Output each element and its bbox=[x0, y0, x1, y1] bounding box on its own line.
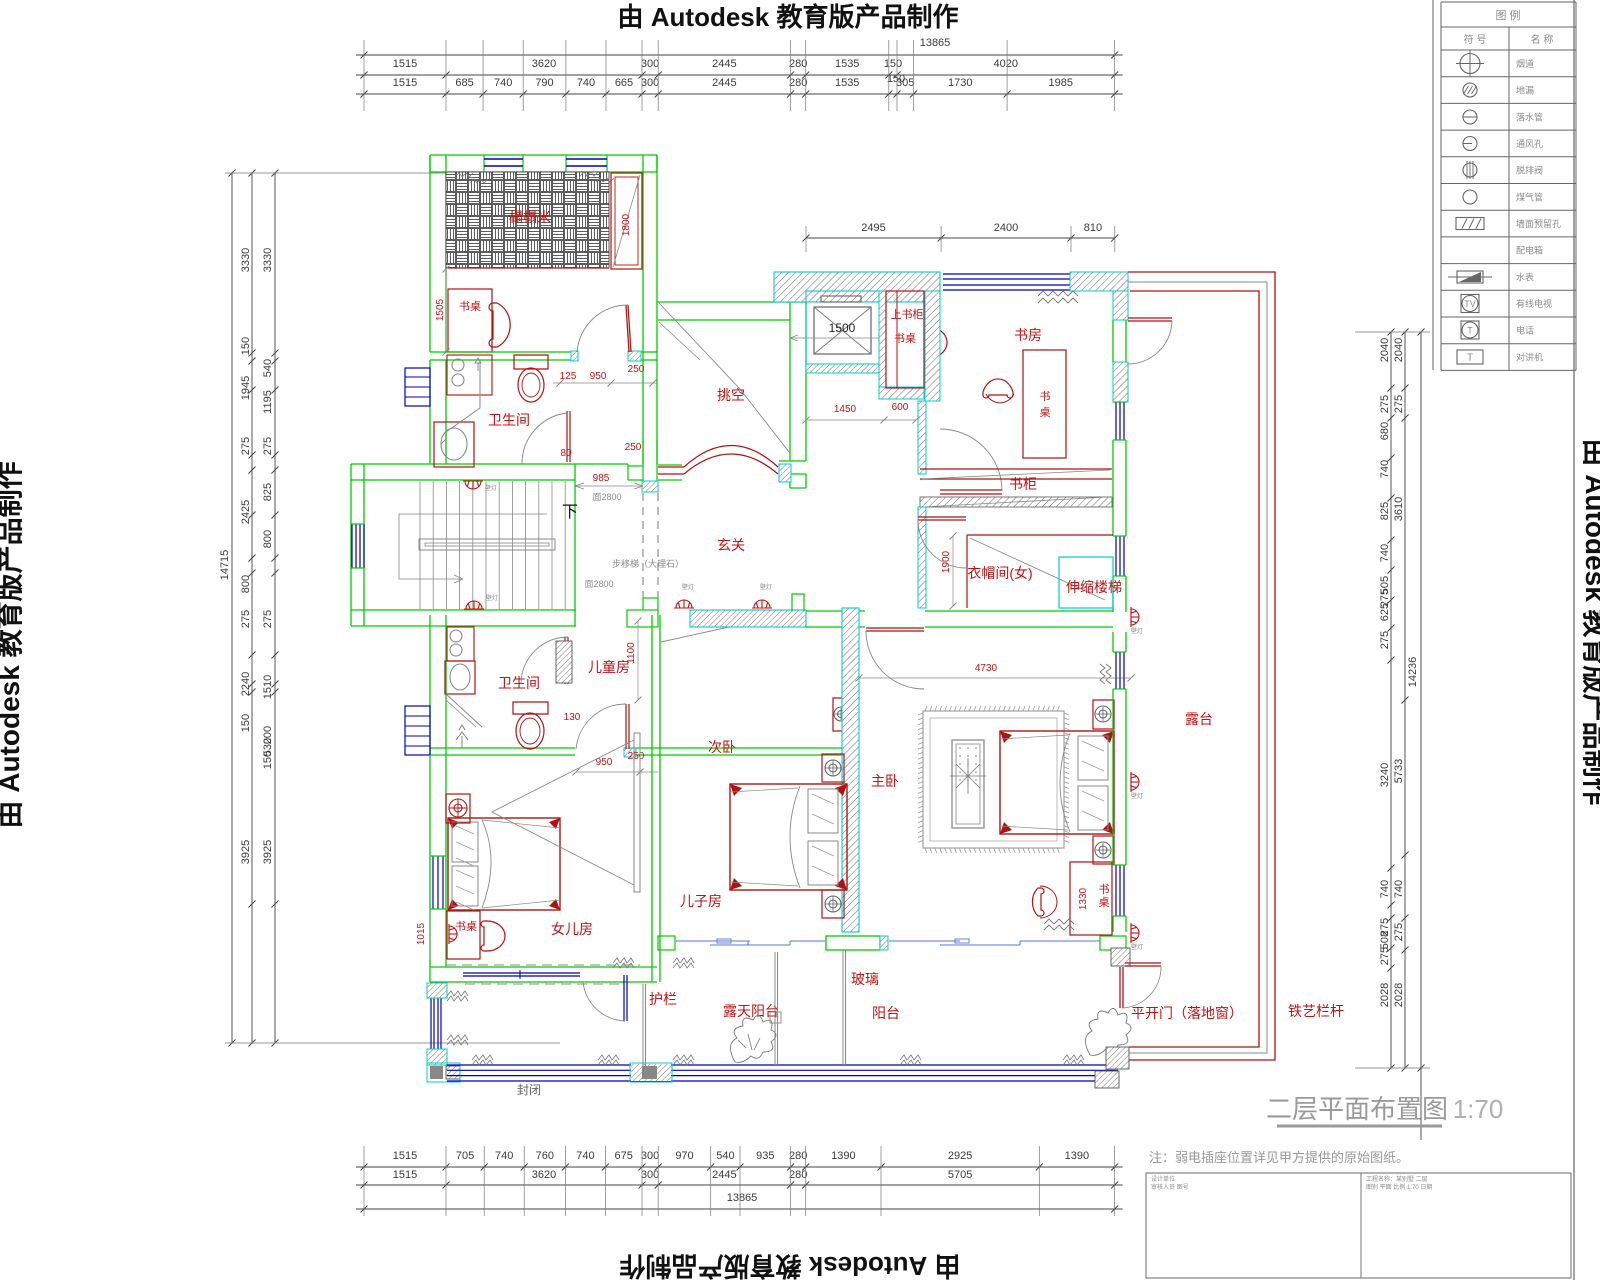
svg-text:2425: 2425 bbox=[240, 500, 252, 524]
svg-text:设计单位: 设计单位 bbox=[1151, 1175, 1175, 1183]
svg-text:2925: 2925 bbox=[948, 1150, 972, 1162]
svg-text:1515: 1515 bbox=[393, 77, 417, 89]
svg-text:2040: 2040 bbox=[1393, 338, 1405, 362]
svg-text:煤气管: 煤气管 bbox=[1516, 192, 1543, 203]
svg-text:2445: 2445 bbox=[712, 58, 736, 70]
svg-text:1100: 1100 bbox=[626, 642, 637, 664]
svg-text:1505: 1505 bbox=[435, 298, 446, 321]
svg-text:985: 985 bbox=[593, 473, 610, 484]
svg-text:2240: 2240 bbox=[240, 672, 252, 696]
svg-text:壁灯: 壁灯 bbox=[486, 594, 498, 602]
svg-text:1730: 1730 bbox=[948, 77, 972, 89]
svg-text:740: 740 bbox=[576, 1150, 594, 1162]
svg-text:14715: 14715 bbox=[219, 550, 231, 581]
svg-text:1535: 1535 bbox=[835, 58, 859, 70]
svg-text:1195: 1195 bbox=[262, 390, 274, 414]
svg-text:桌: 桌 bbox=[1040, 406, 1051, 419]
svg-text:150: 150 bbox=[887, 73, 905, 85]
svg-text:地漏: 地漏 bbox=[1516, 85, 1534, 96]
svg-text:书柜: 书柜 bbox=[1009, 476, 1037, 492]
svg-text:护栏: 护栏 bbox=[649, 991, 677, 1007]
svg-text:墙面预留孔: 墙面预留孔 bbox=[1516, 218, 1561, 229]
svg-text:1945: 1945 bbox=[240, 376, 252, 400]
svg-text:符 号: 符 号 bbox=[1464, 33, 1487, 46]
svg-text:250: 250 bbox=[628, 364, 645, 375]
svg-text:13865: 13865 bbox=[920, 37, 951, 49]
svg-text:2445: 2445 bbox=[712, 1169, 736, 1181]
svg-text:有线电视: 有线电视 bbox=[1516, 298, 1552, 309]
svg-text:790: 790 bbox=[535, 77, 553, 89]
svg-text:1390: 1390 bbox=[1065, 1150, 1089, 1162]
svg-text:810: 810 bbox=[1084, 222, 1102, 234]
svg-text:740: 740 bbox=[577, 77, 595, 89]
svg-text:书桌: 书桌 bbox=[459, 300, 481, 313]
svg-text:名 称: 名 称 bbox=[1531, 33, 1554, 46]
svg-text:740: 740 bbox=[495, 1150, 513, 1162]
svg-text:3330: 3330 bbox=[262, 248, 274, 272]
svg-text:2028: 2028 bbox=[1393, 983, 1405, 1007]
svg-text:卫生间: 卫生间 bbox=[488, 412, 530, 428]
svg-text:150: 150 bbox=[262, 751, 274, 769]
svg-text:80: 80 bbox=[560, 448, 572, 459]
svg-text:1515: 1515 bbox=[393, 1169, 417, 1181]
svg-text:665: 665 bbox=[615, 77, 633, 89]
svg-text:儿子房: 儿子房 bbox=[680, 893, 722, 909]
svg-text:280: 280 bbox=[789, 1169, 807, 1181]
svg-text:T: T bbox=[1467, 326, 1473, 336]
svg-text:1985: 1985 bbox=[1049, 77, 1073, 89]
svg-text:铁艺栏杆: 铁艺栏杆 bbox=[1288, 1003, 1344, 1019]
svg-text:壁灯: 壁灯 bbox=[485, 484, 497, 492]
svg-text:书桌: 书桌 bbox=[455, 920, 477, 933]
svg-text:950: 950 bbox=[596, 757, 613, 768]
svg-text:150: 150 bbox=[240, 714, 252, 732]
svg-text:740: 740 bbox=[1393, 880, 1405, 898]
svg-text:2495: 2495 bbox=[861, 222, 885, 234]
svg-text:5733: 5733 bbox=[1393, 759, 1405, 783]
svg-text:275: 275 bbox=[240, 610, 252, 628]
svg-text:150: 150 bbox=[884, 58, 902, 70]
svg-text:760: 760 bbox=[536, 1150, 554, 1162]
svg-text:625: 625 bbox=[1379, 603, 1391, 621]
svg-text:烟道: 烟道 bbox=[1516, 58, 1534, 69]
svg-text:二层平面布置图: 二层平面布置图 bbox=[1266, 1094, 1448, 1124]
svg-text:图 例: 图 例 bbox=[1495, 8, 1520, 22]
svg-text:封闭: 封闭 bbox=[517, 1083, 541, 1097]
svg-text:次卧: 次卧 bbox=[708, 739, 736, 755]
svg-text:阳台: 阳台 bbox=[872, 1005, 900, 1021]
svg-text:825: 825 bbox=[1379, 502, 1391, 520]
svg-text:300: 300 bbox=[641, 58, 659, 70]
svg-text:130: 130 bbox=[564, 712, 581, 723]
svg-text:4020: 4020 bbox=[994, 58, 1018, 70]
svg-text:衣帽间(女): 衣帽间(女) bbox=[967, 565, 1032, 581]
svg-text:1515: 1515 bbox=[393, 1150, 417, 1162]
svg-text:挑空: 挑空 bbox=[717, 387, 745, 403]
svg-text:水表: 水表 bbox=[1516, 272, 1534, 283]
svg-text:970: 970 bbox=[675, 1150, 693, 1162]
svg-text:275: 275 bbox=[262, 610, 274, 628]
svg-text:由 Autodesk 教育版产品制作: 由 Autodesk 教育版产品制作 bbox=[618, 2, 959, 32]
svg-text:705: 705 bbox=[456, 1150, 474, 1162]
svg-text:T: T bbox=[1467, 353, 1473, 364]
svg-text:面2800: 面2800 bbox=[592, 492, 621, 502]
svg-text:680: 680 bbox=[1379, 422, 1391, 440]
svg-text:540: 540 bbox=[262, 359, 274, 377]
svg-text:1800: 1800 bbox=[621, 213, 632, 236]
svg-text:由 Autodesk 教育版产品制作: 由 Autodesk 教育版产品制作 bbox=[1580, 438, 1600, 805]
svg-text:800: 800 bbox=[240, 575, 252, 593]
svg-text:壁灯: 壁灯 bbox=[1131, 792, 1143, 800]
svg-text:150: 150 bbox=[240, 337, 252, 355]
svg-text:2040: 2040 bbox=[1379, 338, 1391, 362]
svg-text:1500: 1500 bbox=[829, 321, 856, 335]
svg-text:由 Autodesk 教育版产品制作: 由 Autodesk 教育版产品制作 bbox=[620, 1251, 961, 1280]
svg-text:740: 740 bbox=[1379, 880, 1391, 898]
svg-text:1015: 1015 bbox=[416, 922, 427, 945]
svg-text:600: 600 bbox=[892, 402, 909, 413]
svg-text:露台: 露台 bbox=[1185, 711, 1213, 727]
svg-text:685: 685 bbox=[455, 77, 473, 89]
svg-text:3620: 3620 bbox=[532, 58, 556, 70]
svg-text:3620: 3620 bbox=[532, 1169, 556, 1181]
svg-text:榻榻米: 榻榻米 bbox=[509, 209, 551, 225]
svg-text:审核人员 图号: 审核人员 图号 bbox=[1151, 1183, 1189, 1191]
svg-text:1450: 1450 bbox=[834, 404, 857, 415]
svg-text:935: 935 bbox=[756, 1150, 774, 1162]
svg-text:女儿房: 女儿房 bbox=[551, 921, 593, 937]
svg-text:玄关: 玄关 bbox=[717, 537, 745, 553]
svg-text:3925: 3925 bbox=[240, 840, 252, 864]
svg-text:下: 下 bbox=[562, 504, 578, 521]
svg-text:250: 250 bbox=[625, 442, 642, 453]
svg-text:1515: 1515 bbox=[393, 58, 417, 70]
svg-text:2400: 2400 bbox=[994, 222, 1018, 234]
svg-text:5705: 5705 bbox=[948, 1169, 972, 1181]
svg-text:1330: 1330 bbox=[1078, 887, 1089, 910]
svg-text:由 Autodesk 教育版产品制作: 由 Autodesk 教育版产品制作 bbox=[0, 461, 25, 828]
svg-text:275: 275 bbox=[1379, 631, 1391, 649]
svg-text:伸缩楼梯: 伸缩楼梯 bbox=[1066, 579, 1122, 595]
svg-text:露天阳台: 露天阳台 bbox=[723, 1003, 779, 1019]
svg-text:2445: 2445 bbox=[712, 77, 736, 89]
svg-text:电话: 电话 bbox=[1516, 325, 1534, 336]
svg-text:面2800: 面2800 bbox=[584, 579, 613, 589]
svg-text:508: 508 bbox=[1379, 931, 1391, 949]
svg-text:950: 950 bbox=[590, 371, 607, 382]
svg-text:275: 275 bbox=[262, 437, 274, 455]
svg-text:740: 740 bbox=[1379, 460, 1391, 478]
svg-text:300: 300 bbox=[641, 1150, 659, 1162]
svg-text:300: 300 bbox=[641, 77, 659, 89]
svg-text:脱排阀: 脱排阀 bbox=[1516, 165, 1543, 176]
svg-text:2028: 2028 bbox=[1379, 983, 1391, 1007]
svg-text:250: 250 bbox=[628, 751, 645, 762]
svg-text:步移梯（大理石）: 步移梯（大理石） bbox=[612, 558, 684, 569]
svg-text:书桌: 书桌 bbox=[894, 332, 916, 345]
svg-text:540: 540 bbox=[716, 1150, 734, 1162]
svg-text:280: 280 bbox=[789, 1150, 807, 1162]
svg-text:13865: 13865 bbox=[727, 1192, 758, 1204]
svg-text:740: 740 bbox=[494, 77, 512, 89]
svg-text:桌: 桌 bbox=[1099, 896, 1110, 909]
svg-text:3925: 3925 bbox=[262, 840, 274, 864]
svg-text:注：弱电插座位置详见甲方提供的原始图纸。: 注：弱电插座位置详见甲方提供的原始图纸。 bbox=[1149, 1150, 1409, 1165]
svg-text:落水管: 落水管 bbox=[1516, 112, 1543, 123]
svg-text:卫生间: 卫生间 bbox=[498, 675, 540, 691]
svg-text:1535: 1535 bbox=[835, 77, 859, 89]
svg-text:平开门（落地窗）: 平开门（落地窗） bbox=[1131, 1005, 1243, 1021]
svg-text:1:70: 1:70 bbox=[1453, 1094, 1504, 1124]
svg-text:书房: 书房 bbox=[1014, 327, 1042, 343]
svg-text:3240: 3240 bbox=[1379, 763, 1391, 787]
svg-text:675: 675 bbox=[615, 1150, 633, 1162]
svg-text:300: 300 bbox=[641, 1169, 659, 1181]
svg-text:1390: 1390 bbox=[831, 1150, 855, 1162]
svg-text:280: 280 bbox=[789, 77, 807, 89]
svg-text:工程名称：某别墅 二层: 工程名称：某别墅 二层 bbox=[1366, 1175, 1428, 1183]
svg-text:275: 275 bbox=[1379, 395, 1391, 413]
svg-text:壁灯: 壁灯 bbox=[1131, 943, 1143, 951]
svg-text:14236: 14236 bbox=[1407, 657, 1419, 688]
svg-text:书: 书 bbox=[1099, 883, 1110, 896]
svg-text:3610: 3610 bbox=[1393, 497, 1405, 521]
svg-text:书: 书 bbox=[1040, 390, 1051, 403]
svg-text:3330: 3330 bbox=[240, 248, 252, 272]
svg-text:275: 275 bbox=[1393, 395, 1405, 413]
svg-text:对讲机: 对讲机 bbox=[1516, 352, 1543, 363]
svg-text:主卧: 主卧 bbox=[871, 773, 899, 789]
svg-text:儿童房: 儿童房 bbox=[588, 659, 630, 675]
svg-text:壁灯: 壁灯 bbox=[1131, 627, 1143, 635]
svg-text:上书柜: 上书柜 bbox=[891, 308, 924, 321]
svg-text:玻璃: 玻璃 bbox=[851, 971, 879, 987]
svg-text:通风孔: 通风孔 bbox=[1516, 139, 1543, 149]
svg-text:825: 825 bbox=[262, 483, 274, 501]
svg-text:4730: 4730 bbox=[975, 663, 998, 674]
svg-text:740: 740 bbox=[1379, 544, 1391, 562]
svg-text:图别 平面 比例 1:70 日期: 图别 平面 比例 1:70 日期 bbox=[1366, 1183, 1432, 1191]
svg-text:800: 800 bbox=[262, 530, 274, 548]
svg-text:壁灯: 壁灯 bbox=[760, 583, 772, 591]
svg-text:壁灯: 壁灯 bbox=[682, 583, 694, 591]
svg-text:275: 275 bbox=[240, 437, 252, 455]
svg-text:275: 275 bbox=[1393, 923, 1405, 941]
svg-text:280: 280 bbox=[789, 58, 807, 70]
svg-text:TV: TV bbox=[1464, 299, 1476, 309]
svg-text:配电箱: 配电箱 bbox=[1516, 245, 1543, 256]
